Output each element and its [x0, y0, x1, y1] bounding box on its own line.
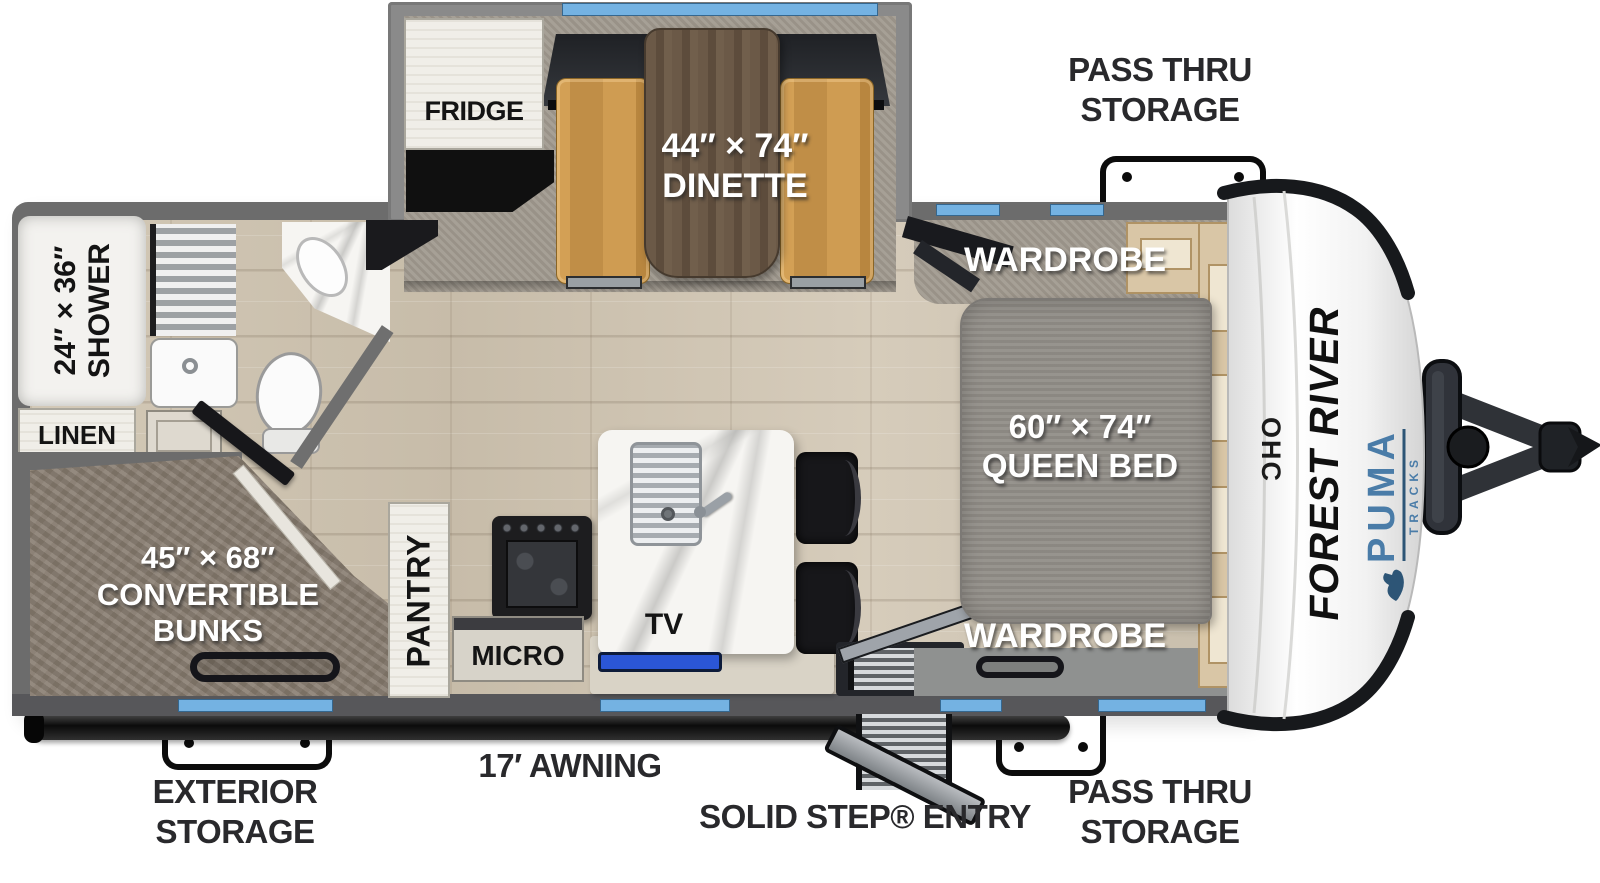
window — [600, 699, 730, 712]
window — [1050, 204, 1104, 216]
queen-size: 60″ × 74″ — [950, 408, 1210, 447]
shower-drain — [182, 358, 198, 374]
linen-label: LINEN — [38, 420, 116, 451]
dinette-size: 44″ × 74″ — [630, 126, 840, 166]
ohc-label: OHC — [1256, 417, 1286, 483]
tv-unit — [598, 652, 722, 672]
kitchen-sink — [630, 442, 702, 546]
tv-label: TV — [622, 608, 706, 642]
grab-handle — [190, 652, 340, 682]
stove-knobs — [500, 521, 584, 535]
shower-pan — [150, 338, 238, 408]
label-pass-thru-storage-top: PASS THRU STORAGE — [1025, 50, 1295, 131]
micro-label: MICRO — [454, 640, 582, 672]
label-awning: 17′ AWNING — [420, 746, 720, 786]
brand-forest-river: FOREST RIVER — [1301, 302, 1347, 623]
chair — [796, 452, 858, 544]
bench-foot-right — [790, 276, 866, 289]
window — [178, 699, 333, 712]
pantry-label: PANTRY — [401, 533, 438, 667]
window — [936, 204, 1000, 216]
bunks-label: 45″ × 68″ CONVERTIBLE BUNKS — [68, 540, 348, 650]
floorplan-canvas: FRIDGE 44″ × 74″ DINETTE 24″ × 36″ SHOWE… — [0, 0, 1600, 883]
shower-stall: 24″ × 36″ SHOWER — [18, 216, 146, 406]
bunks-line3: BUNKS — [68, 613, 348, 650]
brand-puma: PUMA — [1361, 427, 1403, 563]
window — [1098, 699, 1206, 712]
faucet-base — [694, 506, 706, 518]
microwave: MICRO — [452, 616, 584, 682]
sink-drain — [661, 507, 675, 521]
label-pass-thru-storage-bottom: PASS THRU STORAGE — [1025, 772, 1295, 853]
shower-size: 24″ × 36″ — [48, 244, 82, 379]
front-cap: OHC FOREST RIVER PUMA TRACKS — [1210, 175, 1600, 735]
dinette-label: 44″ × 74″ DINETTE — [630, 126, 840, 206]
pantry-cabinet: PANTRY — [388, 502, 450, 698]
wardrobe-bottom-label: WARDROBE — [940, 616, 1190, 656]
bench-foot-left — [566, 276, 642, 289]
chair — [796, 562, 858, 654]
window — [940, 699, 1002, 712]
fridge-label: FRIDGE — [406, 96, 542, 127]
bunks-line2: CONVERTIBLE — [68, 577, 348, 614]
label-solid-step-entry: SOLID STEP® ENTRY — [670, 797, 1060, 837]
wardrobe-top-label: WARDROBE — [940, 240, 1190, 280]
queen-name: QUEEN BED — [950, 447, 1210, 486]
stove — [492, 516, 592, 620]
shower-name: SHOWER — [82, 244, 116, 379]
fridge-cabinet: FRIDGE — [404, 18, 544, 150]
label-exterior-storage: EXTERIOR STORAGE — [85, 772, 385, 853]
stove-top — [506, 540, 578, 608]
shower-door — [150, 224, 236, 336]
brand-puma-sub: TRACKS — [1407, 455, 1421, 535]
dinette-name: DINETTE — [630, 166, 840, 206]
hitch — [1424, 361, 1600, 533]
bunks-size: 45″ × 68″ — [68, 540, 348, 577]
window — [562, 3, 878, 16]
wardrobe-handle — [976, 656, 1064, 678]
queen-bed-label: 60″ × 74″ QUEEN BED — [950, 408, 1210, 486]
